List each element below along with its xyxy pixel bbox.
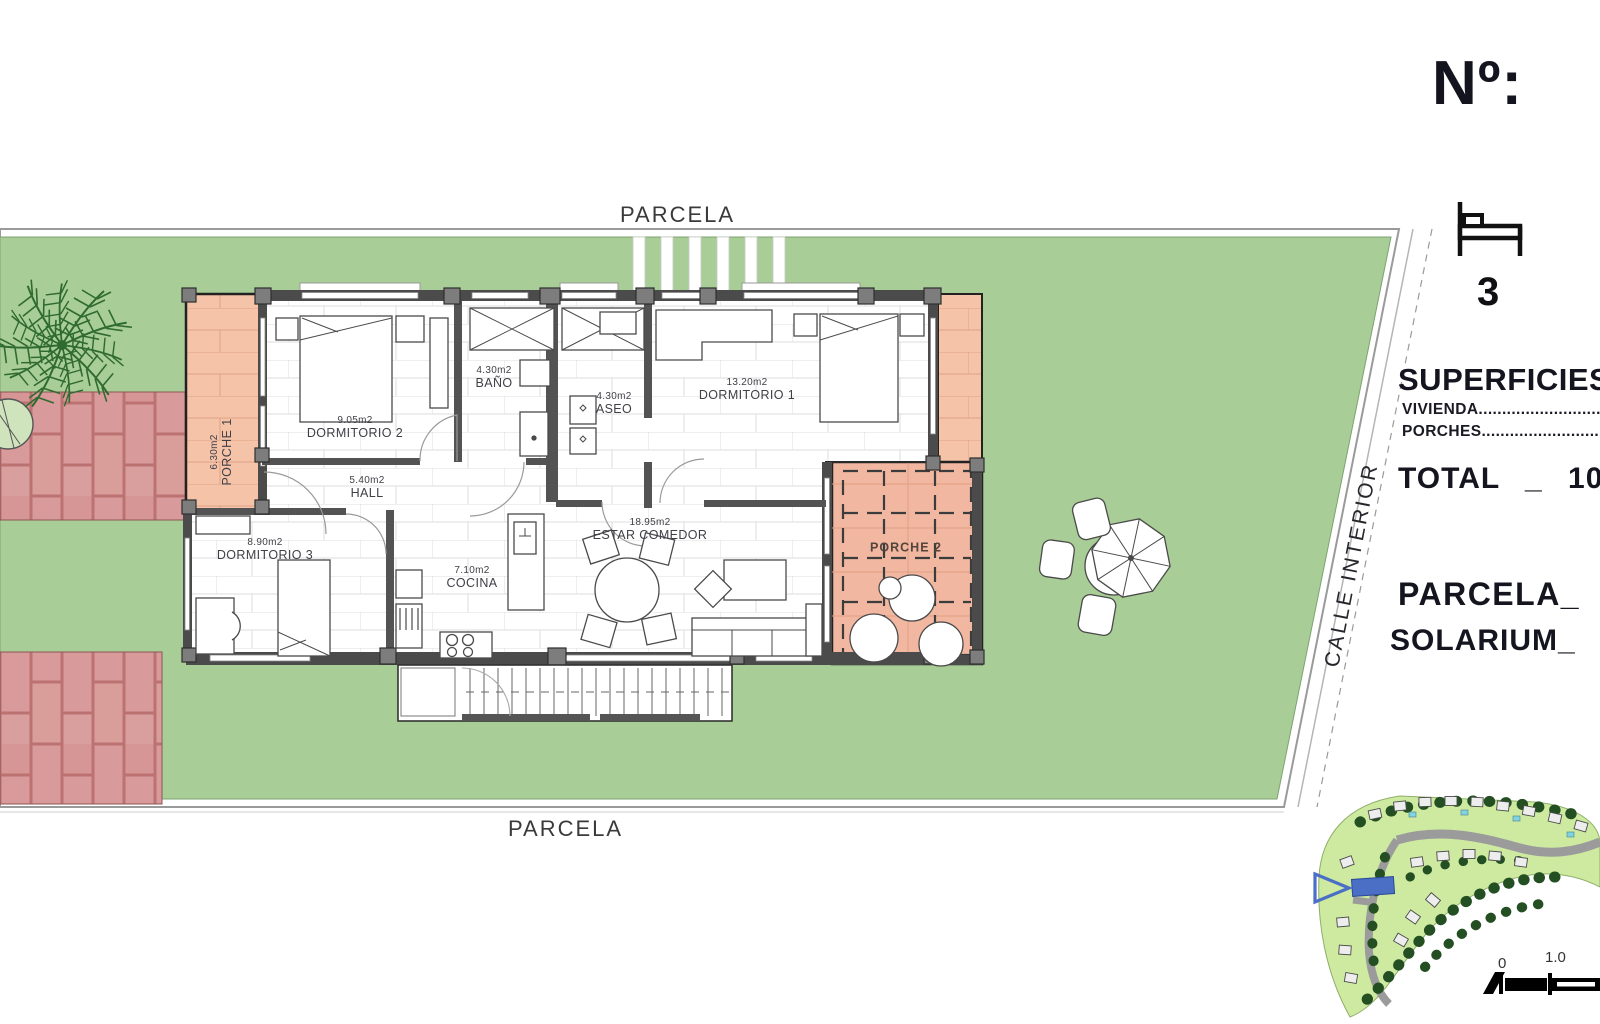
bed-icon (1452, 196, 1528, 262)
floorplan-sheet: { "header": { "number_label": "Nº:", "be… (0, 0, 1600, 1024)
solarium-field-label: SOLARIUM_ (1390, 624, 1576, 658)
room-label-cocina: 7.10m2 COCINA (446, 566, 497, 590)
scale-zero-label: 0 (1498, 955, 1506, 972)
house (182, 283, 984, 721)
brick-path-west (0, 392, 186, 520)
room-label-dormitorio3: 8.90m2 DORMITORIO 3 (217, 538, 313, 562)
parcela-bottom-label: PARCELA (508, 816, 623, 842)
room-label-estar-comedor: 18.95m2 ESTAR COMEDOR (593, 518, 708, 542)
location-minimap: 0 1.0 (1305, 782, 1600, 1024)
room-label-dormitorio1: 13.20m2 DORMITORIO 1 (699, 378, 795, 402)
scale-one-label: 1.0 (1545, 949, 1566, 966)
bedroom-count: 3 (1477, 270, 1499, 315)
room-label-dormitorio2: 9.05m2 DORMITORIO 2 (307, 416, 403, 440)
brick-patio-southwest (0, 652, 162, 804)
porches-line: PORCHES.................................… (1402, 423, 1600, 441)
room-label-aseo: 4.30m2 ASEO (596, 392, 632, 416)
plot-number-label: Nº: (1432, 48, 1523, 119)
room-label-porche1: 6.30m2 PORCHE 1 (210, 418, 234, 485)
entrance-steps (398, 665, 732, 721)
room-label-hall: 5.40m2 HALL (349, 476, 384, 500)
room-label-porche2: PORCHE 2 (870, 541, 942, 554)
highlighted-plot (1351, 877, 1394, 897)
room-label-bano: 4.30m2 BAÑO (475, 366, 512, 390)
superficies-title: SUPERFICIES (1398, 362, 1600, 398)
total-line: TOTAL _ 10 (1398, 462, 1600, 496)
scale-bar: 0 1.0 (1483, 949, 1600, 995)
parcela-top-label: PARCELA (620, 202, 735, 228)
porche-east-strip (938, 294, 982, 466)
vivienda-line: VIVIENDA................................… (1402, 401, 1600, 419)
parcela-field-label: PARCELA_ (1398, 576, 1580, 613)
